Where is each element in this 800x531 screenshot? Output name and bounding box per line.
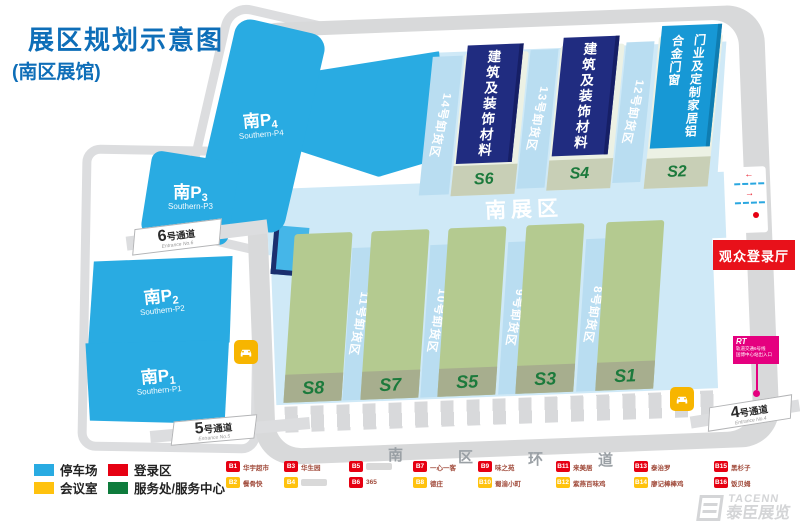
- vendor-item: B13 泰治罗: [634, 461, 671, 472]
- meeting-swatch: [34, 482, 54, 494]
- metro-station: 国博中心站出入口: [736, 352, 776, 358]
- vendor-item: B2 餐骨快: [226, 477, 263, 488]
- parking-p1-en: Southern-P1: [136, 385, 181, 397]
- parking-p1: 南P1 Southern-P1: [84, 340, 232, 424]
- hall-s6-label: S6: [474, 171, 494, 190]
- vendor-item: B11 来美居: [556, 461, 593, 472]
- hall-s8-label: S8: [302, 377, 325, 399]
- ring-road-char: 环: [528, 448, 543, 469]
- dock-13-label: 13号卸货区: [522, 86, 552, 152]
- entrance-arrow-right-icon: →: [734, 188, 764, 198]
- vendor-item: B14 廖记棒棒鸡: [634, 477, 684, 488]
- hall-s4-banner-text: 建筑及装饰材料: [568, 41, 599, 151]
- vendor-item: B4: [284, 477, 327, 488]
- hall-s7: S7: [360, 229, 429, 400]
- vendor-item: B1 华宇超市: [226, 461, 269, 472]
- hall-s1: S1: [595, 220, 664, 391]
- legend-service: 服务处/服务中心: [108, 478, 225, 497]
- ring-road-char: 区: [458, 446, 473, 467]
- hall-s6-banner: 建筑及装饰材料: [456, 43, 524, 164]
- hall-s2-label: S2: [667, 163, 687, 182]
- hall-s3-label: S3: [534, 368, 557, 390]
- metro-pointer-dot: [753, 390, 760, 397]
- registration-swatch: [108, 464, 128, 476]
- exhibition-map: 14号卸货区 13号卸货区 12号卸货区 建筑及装饰材料 S6 建筑及装饰材料 …: [0, 0, 800, 531]
- parking-p3-en: Southern-P3: [168, 203, 213, 211]
- entrance-dot: [753, 212, 759, 218]
- dock-12-label: 12号卸货区: [618, 79, 648, 145]
- plaza-label: 南展区: [484, 192, 563, 225]
- registration-hall-badge: 观众登录厅: [713, 240, 795, 270]
- hall-s4-label: S4: [570, 165, 590, 184]
- vendor-item: B7 一心一客: [413, 461, 456, 472]
- watermark: TACENN 泰臣展览: [696, 494, 793, 522]
- hall-s8: S8: [283, 232, 352, 403]
- hall-s4-banner: 建筑及装饰材料: [552, 36, 620, 157]
- map-title: 展区规划示意图: [28, 20, 224, 57]
- entrance-crosswalk: ← →: [732, 166, 769, 233]
- hall-s3: S3: [515, 223, 584, 394]
- hall-s2-banner-text: 门业及定制家居铝合金门窗: [657, 33, 712, 139]
- venue-outline: 14号卸货区 13号卸货区 12号卸货区 建筑及装饰材料 S6 建筑及装饰材料 …: [240, 4, 781, 466]
- vendor-item: B8 德庄: [413, 477, 443, 488]
- legend-registration: 登录区: [108, 460, 172, 479]
- vendor-item: B10 蜀渝小町: [478, 477, 521, 488]
- vendor-item: B16 饭贝姆: [714, 477, 751, 488]
- hall-s5: S5: [437, 226, 506, 397]
- hall-s6-banner-text: 建筑及装饰材料: [472, 49, 503, 159]
- taxi-icon: [670, 387, 694, 411]
- vendor-item: B3 华生园: [284, 461, 321, 472]
- vendor-item: B12 紫燕百味鸡: [556, 477, 606, 488]
- watermark-en: TACENN: [727, 494, 793, 505]
- taxi-icon: [234, 340, 258, 364]
- vendor-item: B5: [349, 461, 392, 472]
- legend-parking: 停车场: [34, 460, 98, 479]
- parking-p4-en: Southern-P4: [238, 129, 283, 141]
- parking-p2-en: Southern-P2: [139, 305, 185, 318]
- parking-p3-label: 南P: [173, 183, 201, 202]
- service-swatch: [108, 482, 128, 494]
- metro-pointer-line: [756, 364, 758, 390]
- vendor-blank-label: [366, 463, 392, 470]
- watermark-zh: 泰臣展览: [725, 505, 791, 522]
- dock-14-label: 14号卸货区: [426, 92, 456, 158]
- vendor-blank-label: [301, 479, 327, 486]
- parking-swatch: [34, 464, 54, 476]
- hall-s1-label: S1: [614, 365, 637, 387]
- parking-p2: 南P2 Southern-P2: [88, 256, 234, 348]
- vendor-item: B9 味之苑: [478, 461, 515, 472]
- vendor-item: B6 365: [349, 477, 377, 488]
- ring-road-char: 道: [598, 449, 613, 470]
- hall-s5-label: S5: [456, 371, 479, 393]
- metro-logo-icon: RT: [736, 338, 776, 346]
- tacenn-logo-icon: [696, 495, 724, 521]
- hall-s2-banner: 门业及定制家居铝合金门窗: [650, 24, 722, 149]
- vendor-item: B15 黑杉子: [714, 461, 751, 472]
- metro-sign: RT 轨道交通6号线 国博中心站出入口: [733, 336, 779, 364]
- entrance-arrow-left-icon: ←: [734, 169, 764, 179]
- map-subtitle: (南区展馆): [12, 57, 101, 84]
- legend-meeting: 会议室: [34, 478, 98, 497]
- hall-s7-label: S7: [379, 374, 402, 396]
